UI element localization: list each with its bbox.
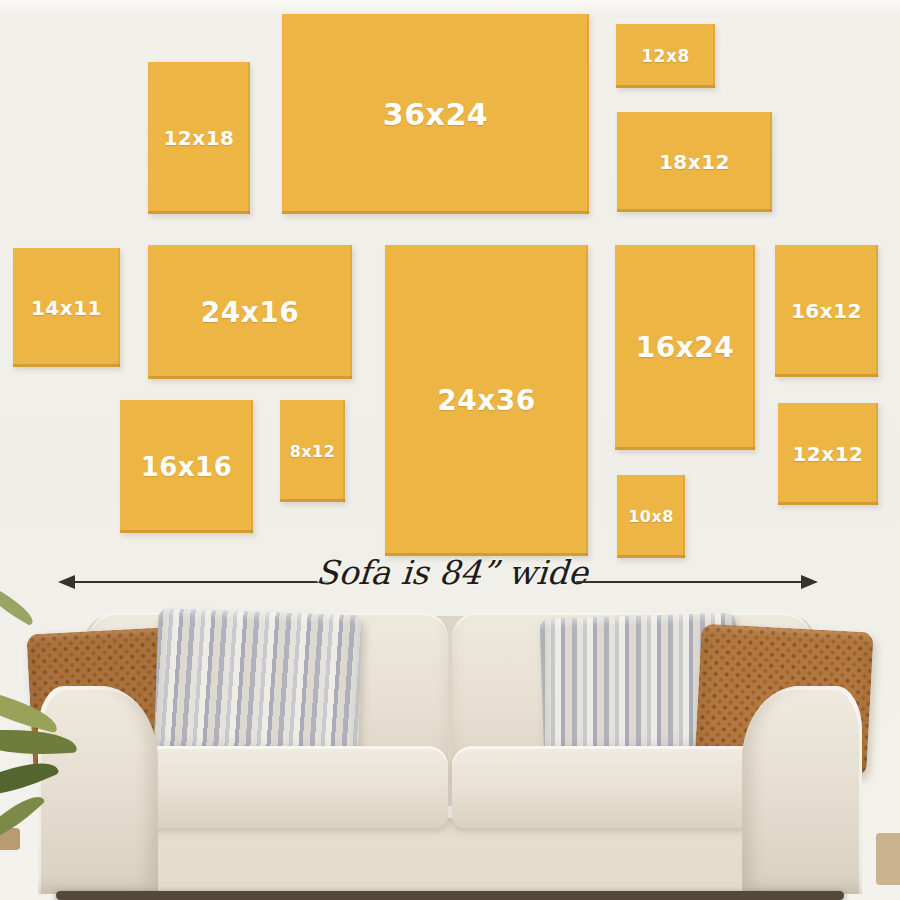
sofa-arm-left — [38, 686, 158, 894]
sofa-base — [52, 818, 848, 894]
sofa — [0, 0, 900, 900]
sofa-arm-right — [742, 686, 862, 894]
sofa-seat-cushion-left — [118, 746, 448, 828]
pillow-gray-left — [153, 608, 362, 767]
sofa-seat-cushion-right — [452, 746, 782, 828]
floor-shadow — [56, 891, 844, 900]
size-guide-scene: 12x18 36x24 12x8 18x12 14x11 24x16 24x36… — [0, 0, 900, 900]
